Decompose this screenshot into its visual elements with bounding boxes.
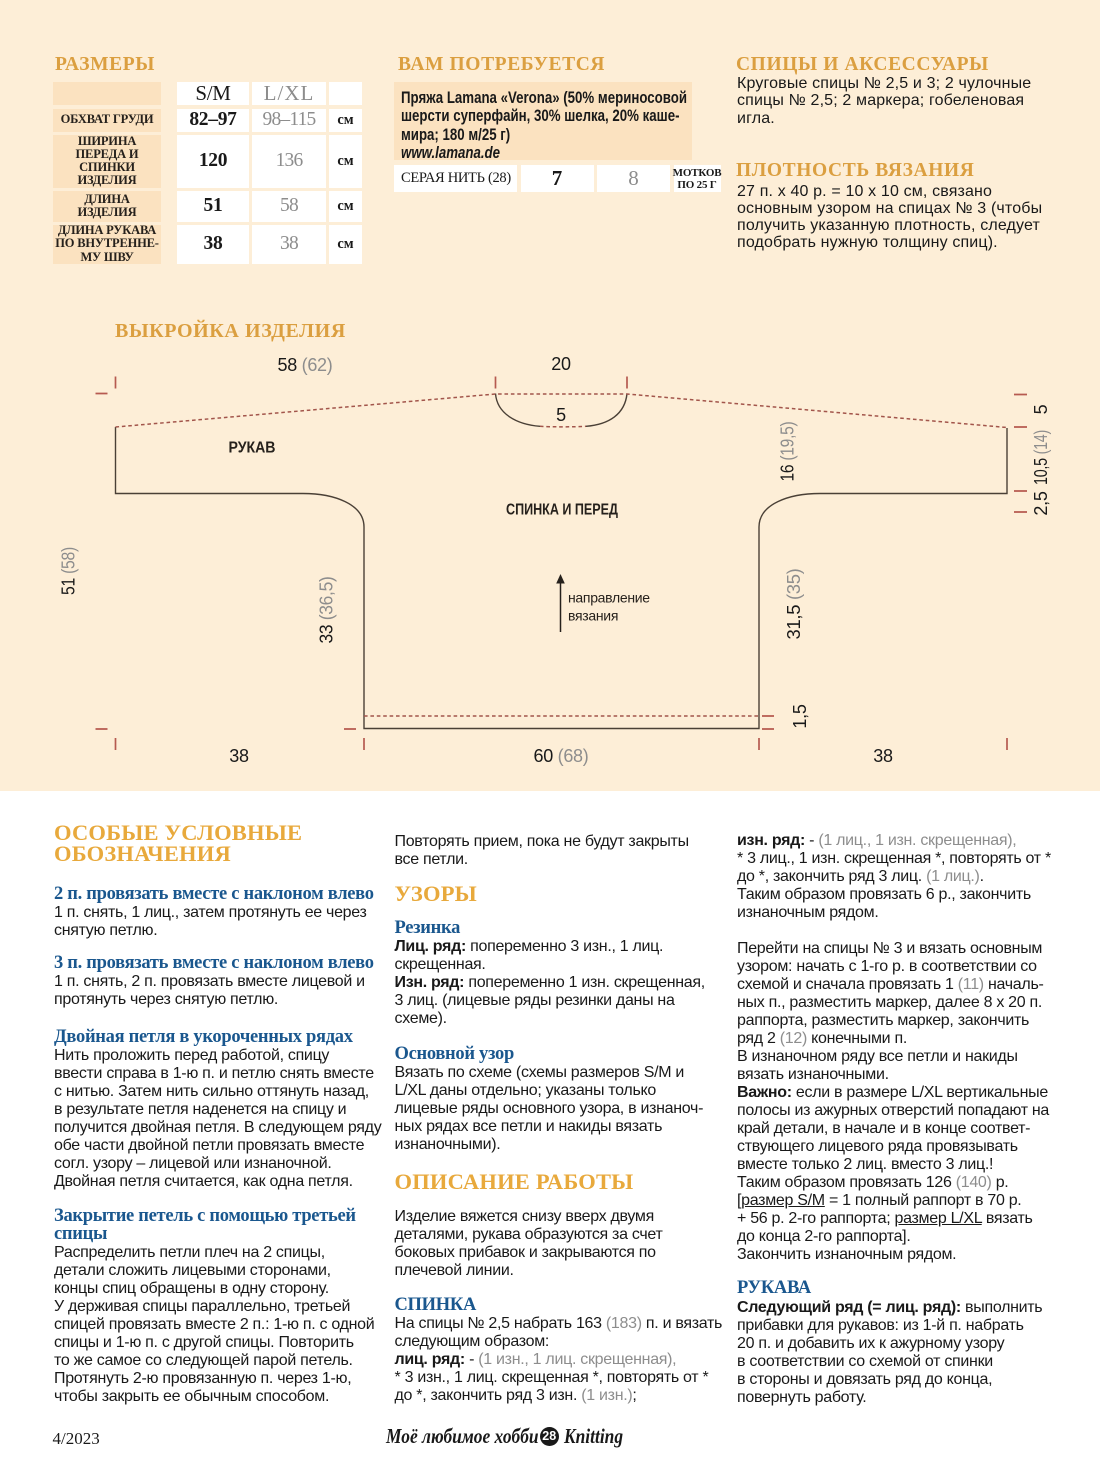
svg-text:51 (58): 51 (58) — [59, 547, 79, 595]
svg-text:РУКАВ: РУКАВ — [229, 440, 276, 457]
svg-text:2,5: 2,5 — [1031, 491, 1051, 515]
svg-text:1,5: 1,5 — [790, 704, 810, 728]
svg-text:58 (62): 58 (62) — [278, 355, 333, 375]
svg-text:5: 5 — [1031, 404, 1051, 414]
svg-text:60 (68): 60 (68) — [534, 746, 589, 766]
svg-text:5: 5 — [556, 405, 566, 425]
svg-text:38: 38 — [873, 746, 893, 766]
svg-text:16 (19,5): 16 (19,5) — [778, 422, 798, 482]
svg-text:вязания: вязания — [568, 607, 618, 623]
svg-text:38: 38 — [229, 746, 249, 766]
svg-text:20: 20 — [551, 354, 571, 374]
svg-text:10,5 (14): 10,5 (14) — [1031, 430, 1051, 485]
svg-text:направление: направление — [568, 589, 650, 605]
svg-text:33 (36,5): 33 (36,5) — [317, 577, 337, 644]
svg-text:СПИНКА И ПЕРЕД: СПИНКА И ПЕРЕД — [506, 502, 618, 519]
svg-text:31,5 (35): 31,5 (35) — [784, 569, 804, 640]
